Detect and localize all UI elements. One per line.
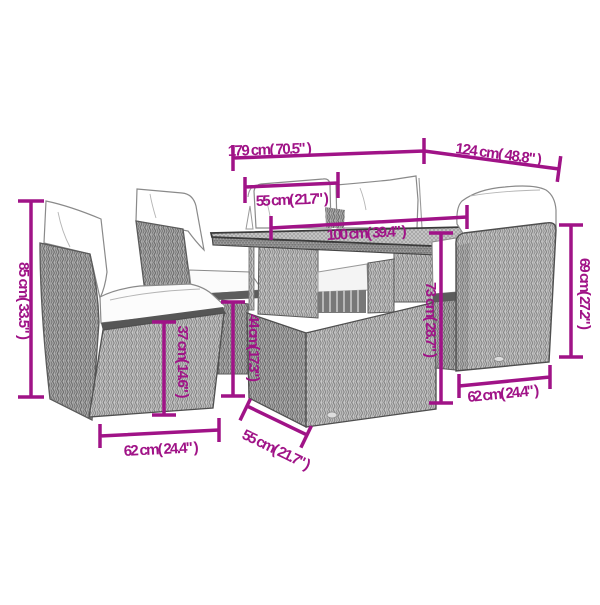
svg-text:44 cm( 17.3" ): 44 cm( 17.3" ) (245, 314, 262, 382)
svg-text:55 cm( 21.7" ): 55 cm( 21.7" ) (256, 190, 330, 210)
svg-text:179 cm( 70.5" ): 179 cm( 70.5" ) (228, 140, 313, 160)
svg-text:85 cm( 33.5" ): 85 cm( 33.5" ) (15, 262, 32, 340)
svg-text:73 cm( 28.7" ): 73 cm( 28.7" ) (422, 282, 439, 358)
svg-text:69 cm( 27.2" ): 69 cm( 27.2" ) (576, 258, 593, 330)
svg-text:37 cm( 14.6" ): 37 cm( 14.6" ) (174, 326, 191, 399)
